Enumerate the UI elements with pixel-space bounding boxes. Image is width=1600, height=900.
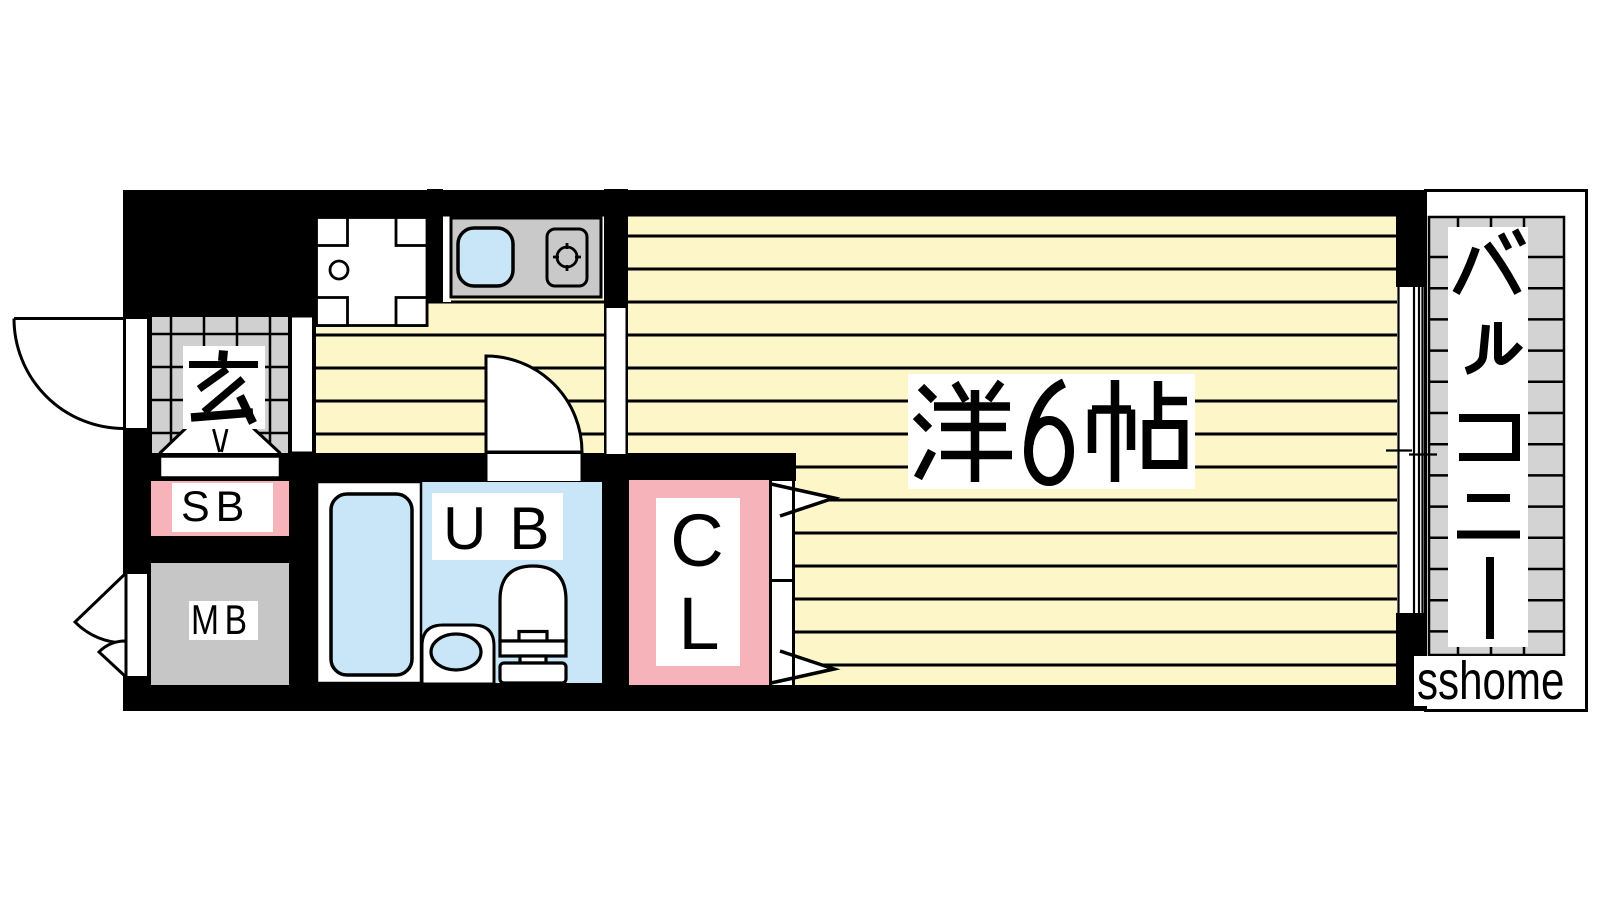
svg-text:MB: MB xyxy=(191,598,253,644)
svg-text:C: C xyxy=(670,499,723,582)
svg-text:SB: SB xyxy=(181,483,250,531)
svg-text:L: L xyxy=(678,582,719,665)
svg-text:UB: UB xyxy=(443,495,572,562)
svg-text:sshome: sshome xyxy=(1417,651,1564,711)
